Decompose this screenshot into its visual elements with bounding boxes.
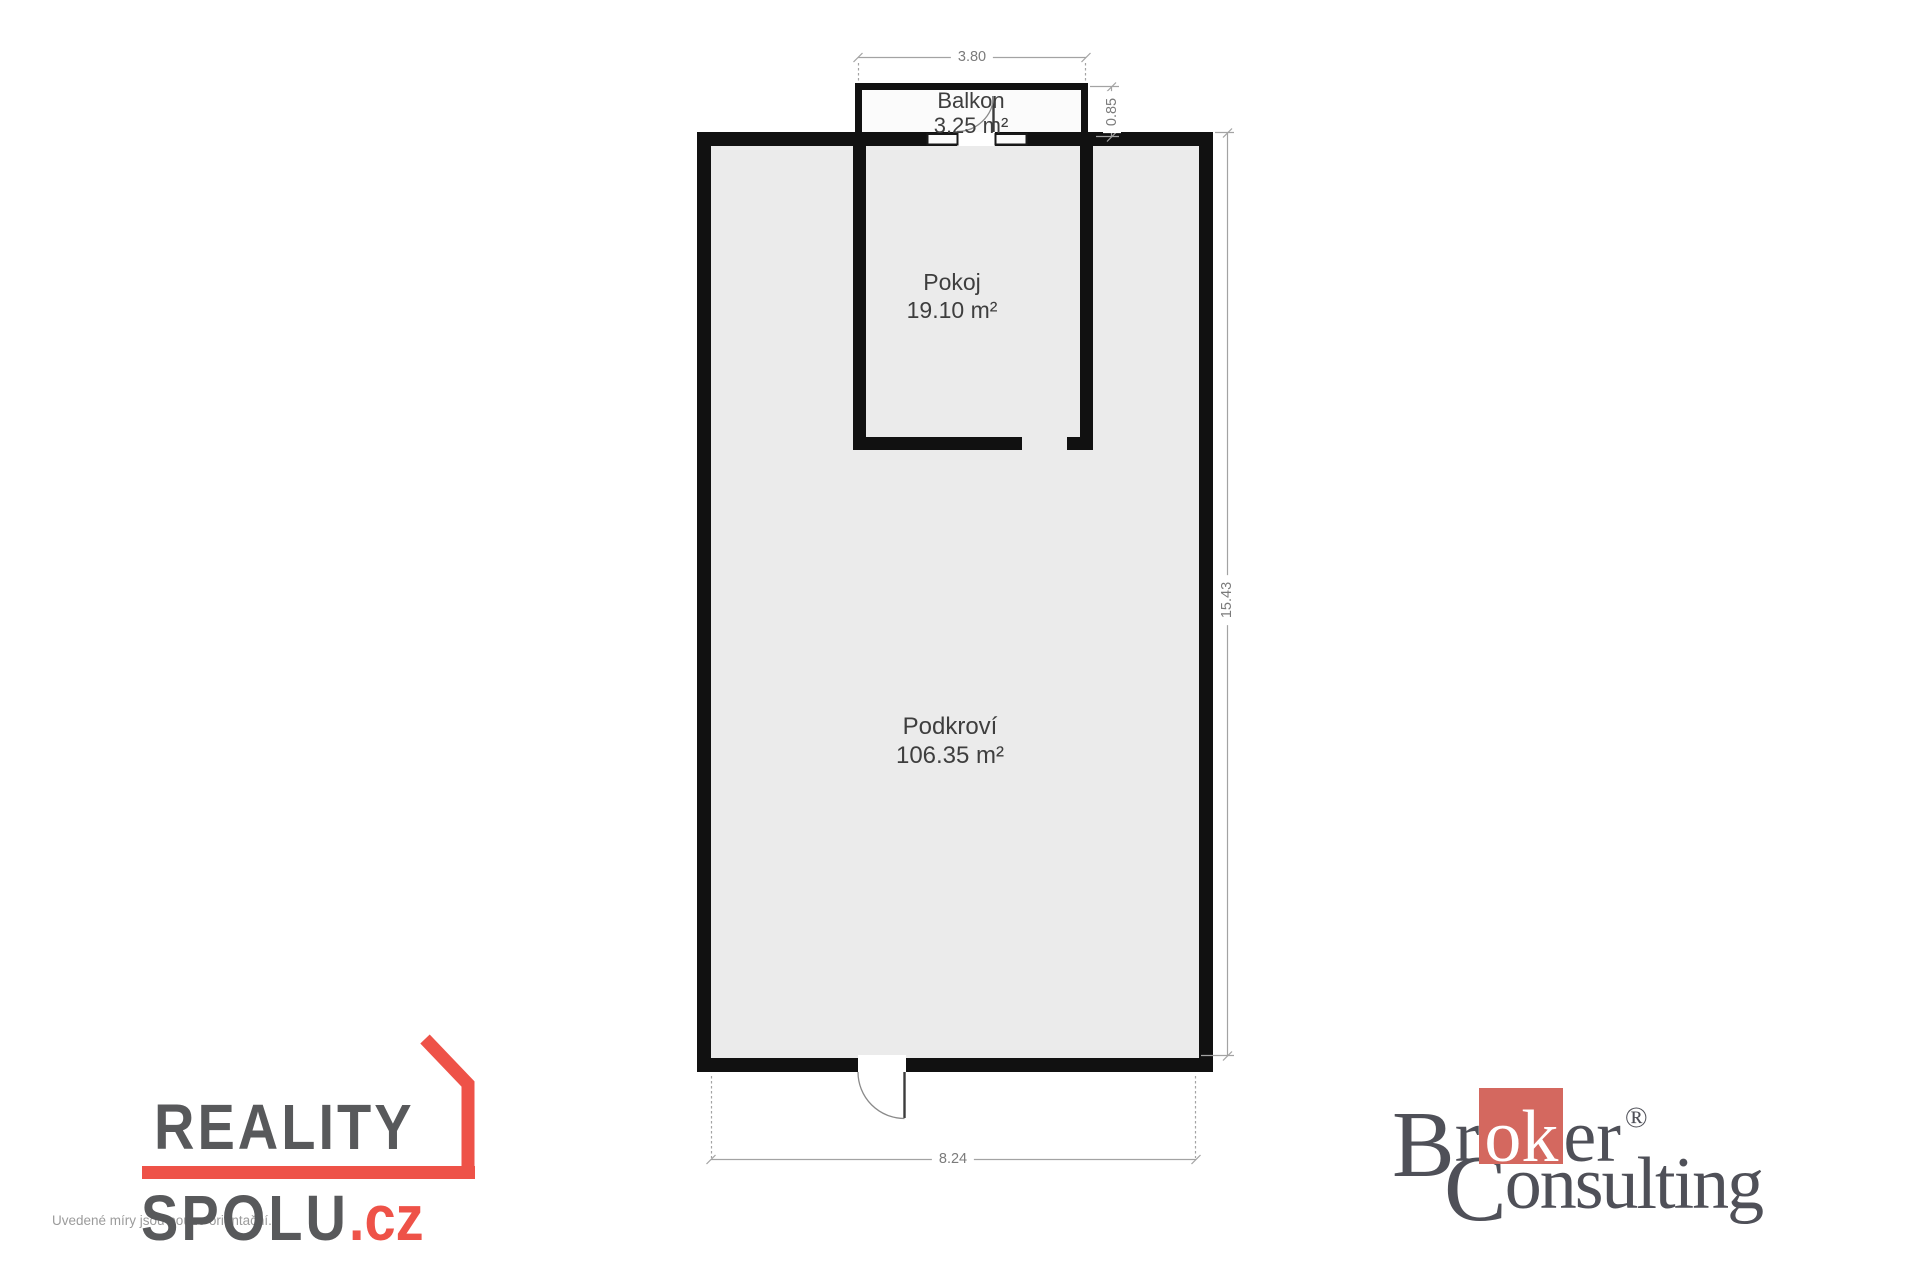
reality-wordmark: REALITY — [154, 1095, 415, 1159]
broker-initial: B — [1392, 1093, 1455, 1197]
broker-part-er: er — [1563, 1096, 1621, 1178]
floor-plan-page: Balkon 3.25 m² Pokoj 19.10 m² Podkroví 1… — [0, 0, 1920, 1280]
dim-label-balkon-depth: 0.85 — [1103, 91, 1121, 133]
entry-door-opening — [858, 1055, 906, 1072]
room-area: 106.35 m² — [896, 741, 1004, 770]
broker-red-square: ok — [1479, 1088, 1563, 1164]
dim-label-building-height: 15.43 — [1218, 575, 1236, 625]
room-name: Balkon — [934, 88, 1009, 113]
broker-wordmark: Broker® — [1392, 1088, 1644, 1189]
spolu-text: SPOLU — [141, 1181, 349, 1253]
room-label-pokoj: Pokoj 19.10 m² — [907, 268, 998, 324]
room-label-podkrovi: Podkroví 106.35 m² — [896, 712, 1004, 770]
room-area: 3.25 m² — [934, 113, 1009, 138]
broker-part-r: r — [1455, 1096, 1480, 1178]
entry-door-swing-arc — [858, 1072, 905, 1119]
room-name: Podkroví — [896, 712, 1004, 741]
room-label-balkon: Balkon 3.25 m² — [934, 88, 1009, 138]
dim-label-building-width: 8.24 — [932, 1150, 974, 1168]
spolu-wordmark: SPOLU.cz — [141, 1186, 424, 1250]
registered-trademark-icon: ® — [1625, 1101, 1648, 1134]
room-area: 19.10 m² — [907, 296, 998, 324]
room-name: Pokoj — [907, 268, 998, 296]
entry-door — [858, 1055, 906, 1119]
dim-label-balkon-width: 3.80 — [951, 48, 993, 66]
cz-suffix: .cz — [349, 1181, 424, 1253]
